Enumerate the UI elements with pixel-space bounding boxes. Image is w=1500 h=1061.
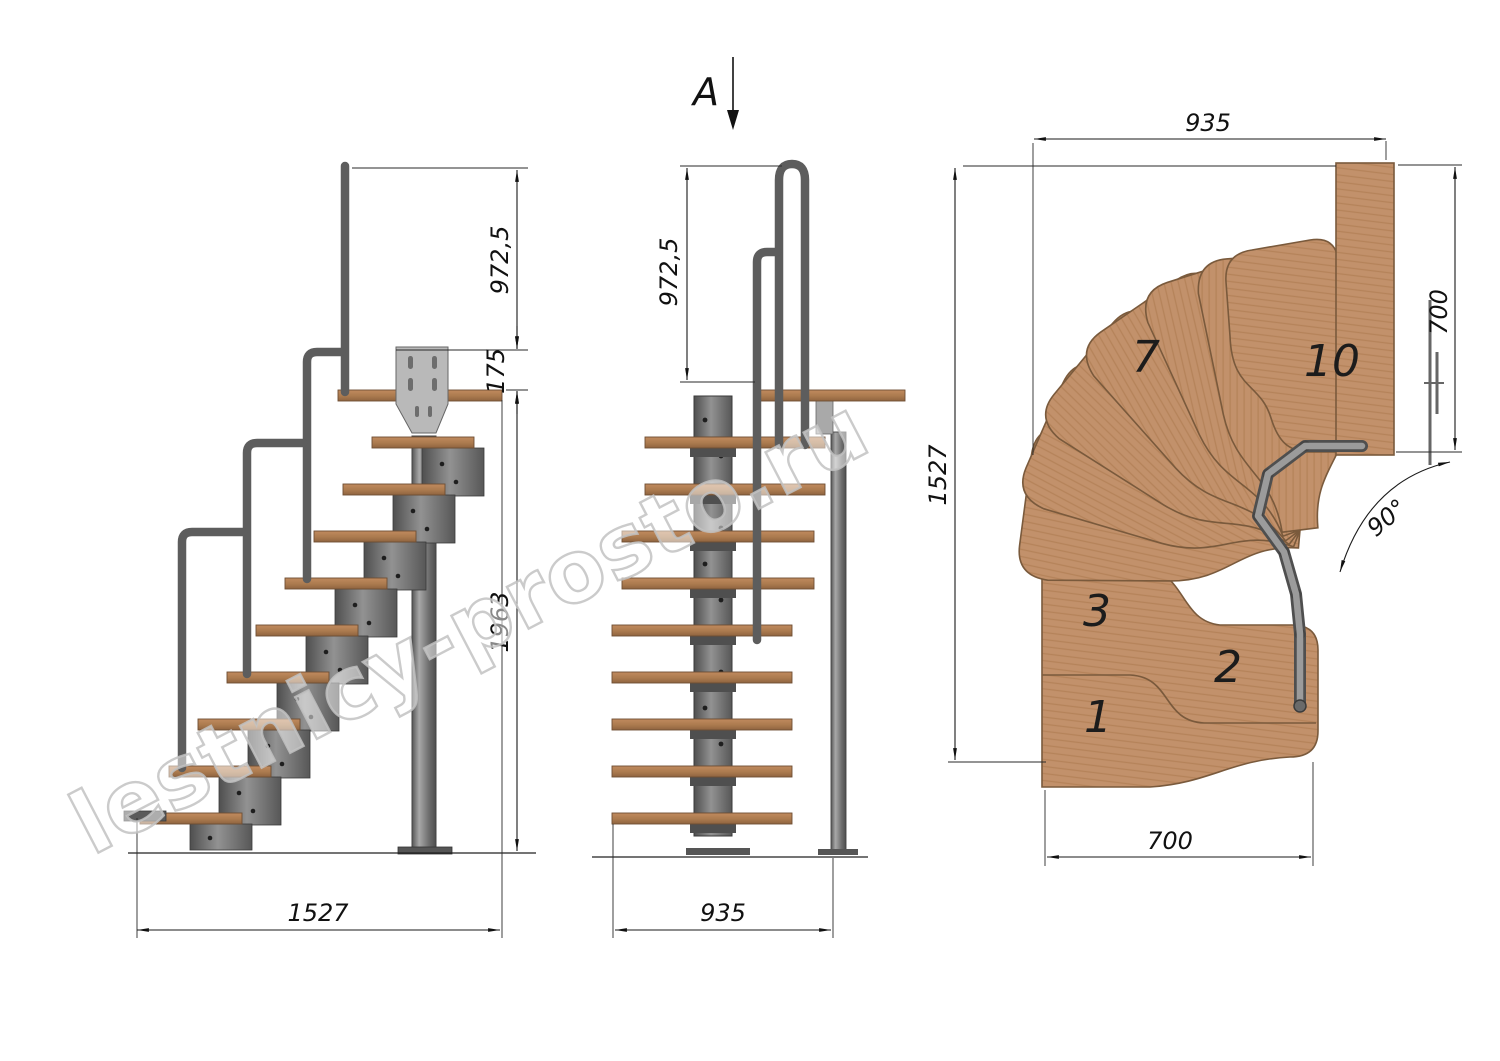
section-marker: A <box>690 57 739 130</box>
front-dim-width: 935 <box>700 899 746 927</box>
section-label: A <box>690 70 719 114</box>
plan-step-label-3: 3 <box>1083 586 1111 637</box>
plan-dim-turn-angle: 90° <box>1362 493 1413 542</box>
handrail-post-2 <box>247 443 303 674</box>
tread-bracket <box>690 589 736 598</box>
plan-handrail-post-end <box>1294 700 1306 712</box>
side-mounting-plate <box>396 347 448 433</box>
tread-bracket <box>690 636 736 645</box>
plan-landing <box>1336 163 1394 455</box>
plan-view: 1 2 3 7 10 935 1527 700 700 90° <box>924 109 1462 866</box>
plan-dim-left-depth: 1527 <box>924 444 952 506</box>
side-dim-rail-height: 972,5 <box>486 226 514 295</box>
plan-step-label-10: 10 <box>1304 336 1360 387</box>
plan-step-label-1: 1 <box>1084 692 1112 743</box>
technical-drawing-page: 972,5 175 1963 1527 A <box>0 0 1500 1061</box>
side-dim-landing-drop: 175 <box>482 348 510 394</box>
handrail-post-3 <box>307 352 341 579</box>
front-pole-flange <box>818 849 858 855</box>
side-dim-run-length: 1527 <box>287 899 349 927</box>
staircase-drawing: 972,5 175 1963 1527 A <box>0 0 1500 1061</box>
plan-dim-wall-side: 700 <box>1425 289 1453 335</box>
front-spine-base-flange <box>686 848 750 855</box>
tread-bracket <box>690 824 736 833</box>
plan-dim-top-width: 935 <box>1185 109 1231 137</box>
plan-dim-bottom-width: 700 <box>1147 827 1193 855</box>
front-right-pole <box>831 432 846 853</box>
tread-bracket <box>690 730 736 739</box>
tread-bracket <box>690 777 736 786</box>
plan-step-label-2: 2 <box>1214 642 1242 693</box>
section-arrow-icon <box>727 110 739 130</box>
tread-bracket <box>690 683 736 692</box>
front-dim-rail-height: 972,5 <box>655 238 683 307</box>
plan-step-label-7: 7 <box>1132 332 1160 383</box>
